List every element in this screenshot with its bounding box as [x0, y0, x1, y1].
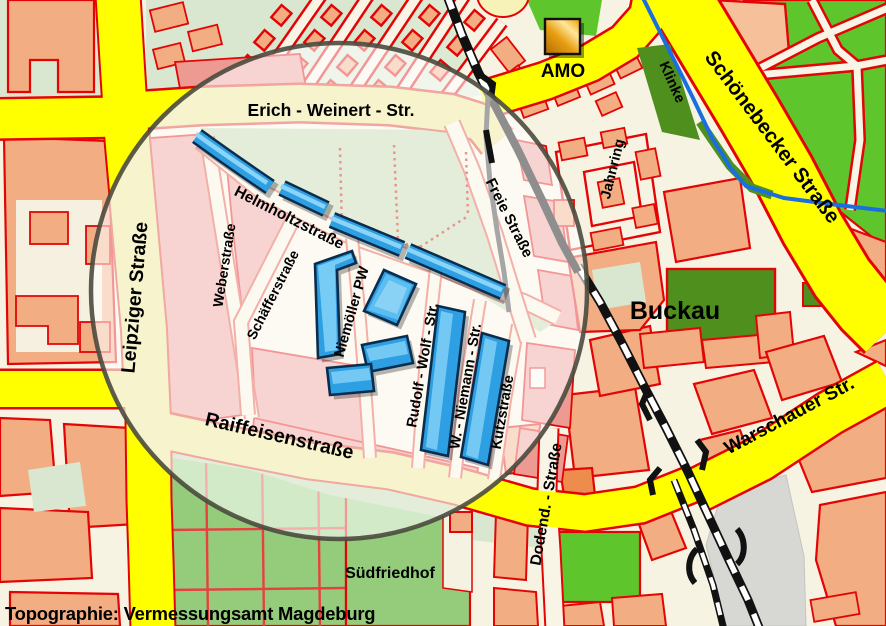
svg-text:Erich - Weinert - Str.: Erich - Weinert - Str. [248, 100, 415, 120]
svg-text:AMO: AMO [541, 61, 585, 82]
svg-text:Topographie: Vermessungsamt Ma: Topographie: Vermessungsamt Magdeburg [5, 603, 375, 624]
svg-text:Buckau: Buckau [630, 297, 720, 325]
svg-text:Südfriedhof: Südfriedhof [345, 565, 435, 582]
